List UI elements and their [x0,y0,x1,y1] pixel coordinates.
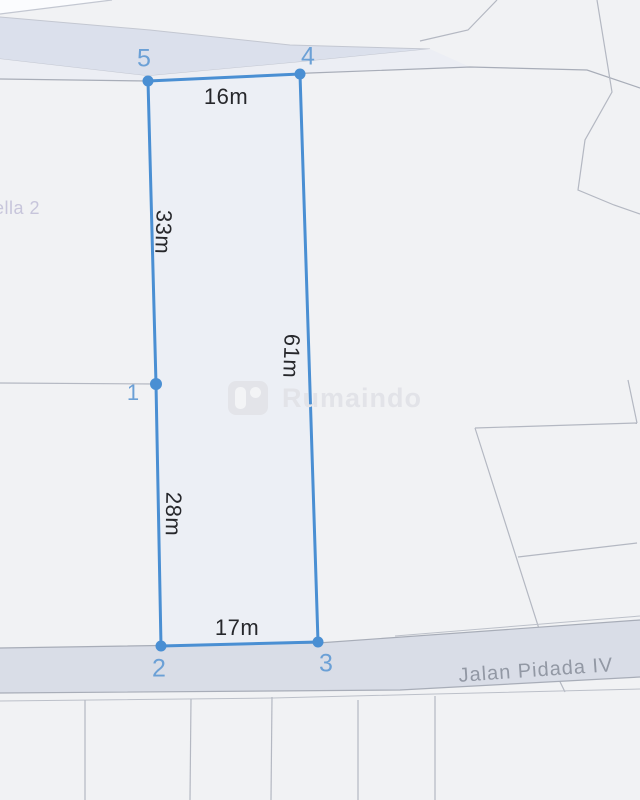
parcel-line-topright-corner [420,0,497,41]
map-canvas[interactable] [0,0,640,800]
parcel-line-right-spur [628,380,637,423]
map-viewport[interactable]: Rumaindo ella 2 Jalan Pidada IV 5 4 1 2 … [0,0,640,800]
plot-polygon[interactable] [148,74,318,646]
plot-vertex-dot-1[interactable] [150,378,162,390]
parcel-line-bottom-3 [271,697,272,800]
plot-vertex-dot-4[interactable] [295,69,306,80]
parcel-line-left-mid [0,383,156,384]
parcel-line-right-zigzag [578,0,640,214]
plot-vertex-dot-5[interactable] [143,76,154,87]
parcel-line-bottom-2 [190,699,191,800]
plot-vertex-dot-2[interactable] [156,641,167,652]
parcel-line-right-top [475,423,637,428]
parcel-line-right-mid [518,543,637,557]
plot-vertex-dot-3[interactable] [313,637,324,648]
